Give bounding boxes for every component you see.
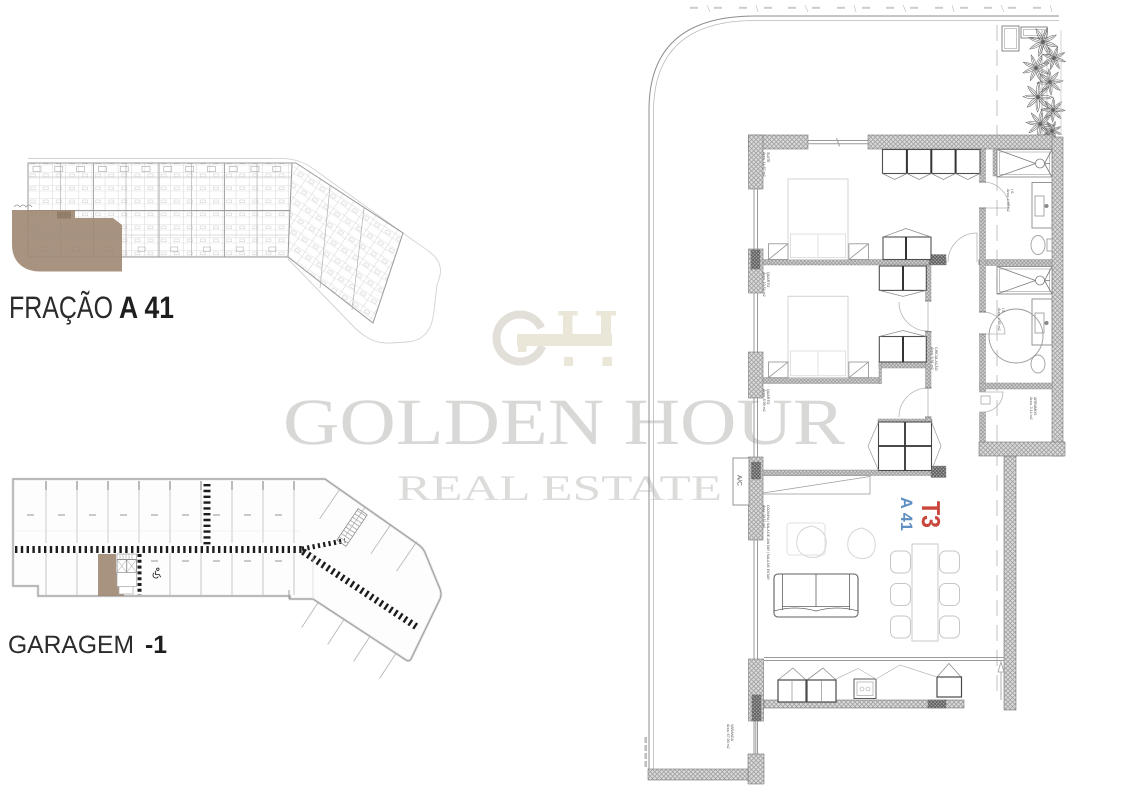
svg-text:GARAGEM: GARAGEM (8, 631, 134, 659)
svg-text:I.S.Área: 4.48 m2: I.S.Área: 4.48 m2 (1006, 189, 1014, 212)
svg-text:VARANDAÁrea: 67.00 m2: VARANDAÁrea: 67.00 m2 (726, 724, 734, 749)
svg-text:A 41: A 41 (119, 290, 174, 325)
svg-text:FRAÇÃO: FRAÇÃO (9, 290, 113, 325)
svg-text:A 41: A 41 (897, 497, 915, 531)
svg-text:REAL ESTATE: REAL ESTATE (397, 468, 722, 508)
svg-text:CIRCULAÇÃOÁrea: 5.91 m2: CIRCULAÇÃOÁrea: 5.91 m2 (930, 347, 939, 371)
svg-text:QUARTOÁrea: 10.54 m2: QUARTOÁrea: 10.54 m2 (762, 272, 770, 297)
svg-text:COZINHA | SALA DE JANTAR | SAL: COZINHA | SALA DE JANTAR | SALA DE ESTAR… (762, 505, 770, 580)
svg-text:-1: -1 (145, 631, 167, 659)
svg-text:A/C: A/C (736, 475, 743, 486)
svg-text:SUITEÁrea: 14.87 m2: SUITEÁrea: 14.87 m2 (762, 152, 770, 177)
svg-text:ARRUMOSÁrea: 3.14 m2: ARRUMOSÁrea: 3.14 m2 (1029, 397, 1037, 420)
svg-text:T3: T3 (916, 501, 946, 528)
